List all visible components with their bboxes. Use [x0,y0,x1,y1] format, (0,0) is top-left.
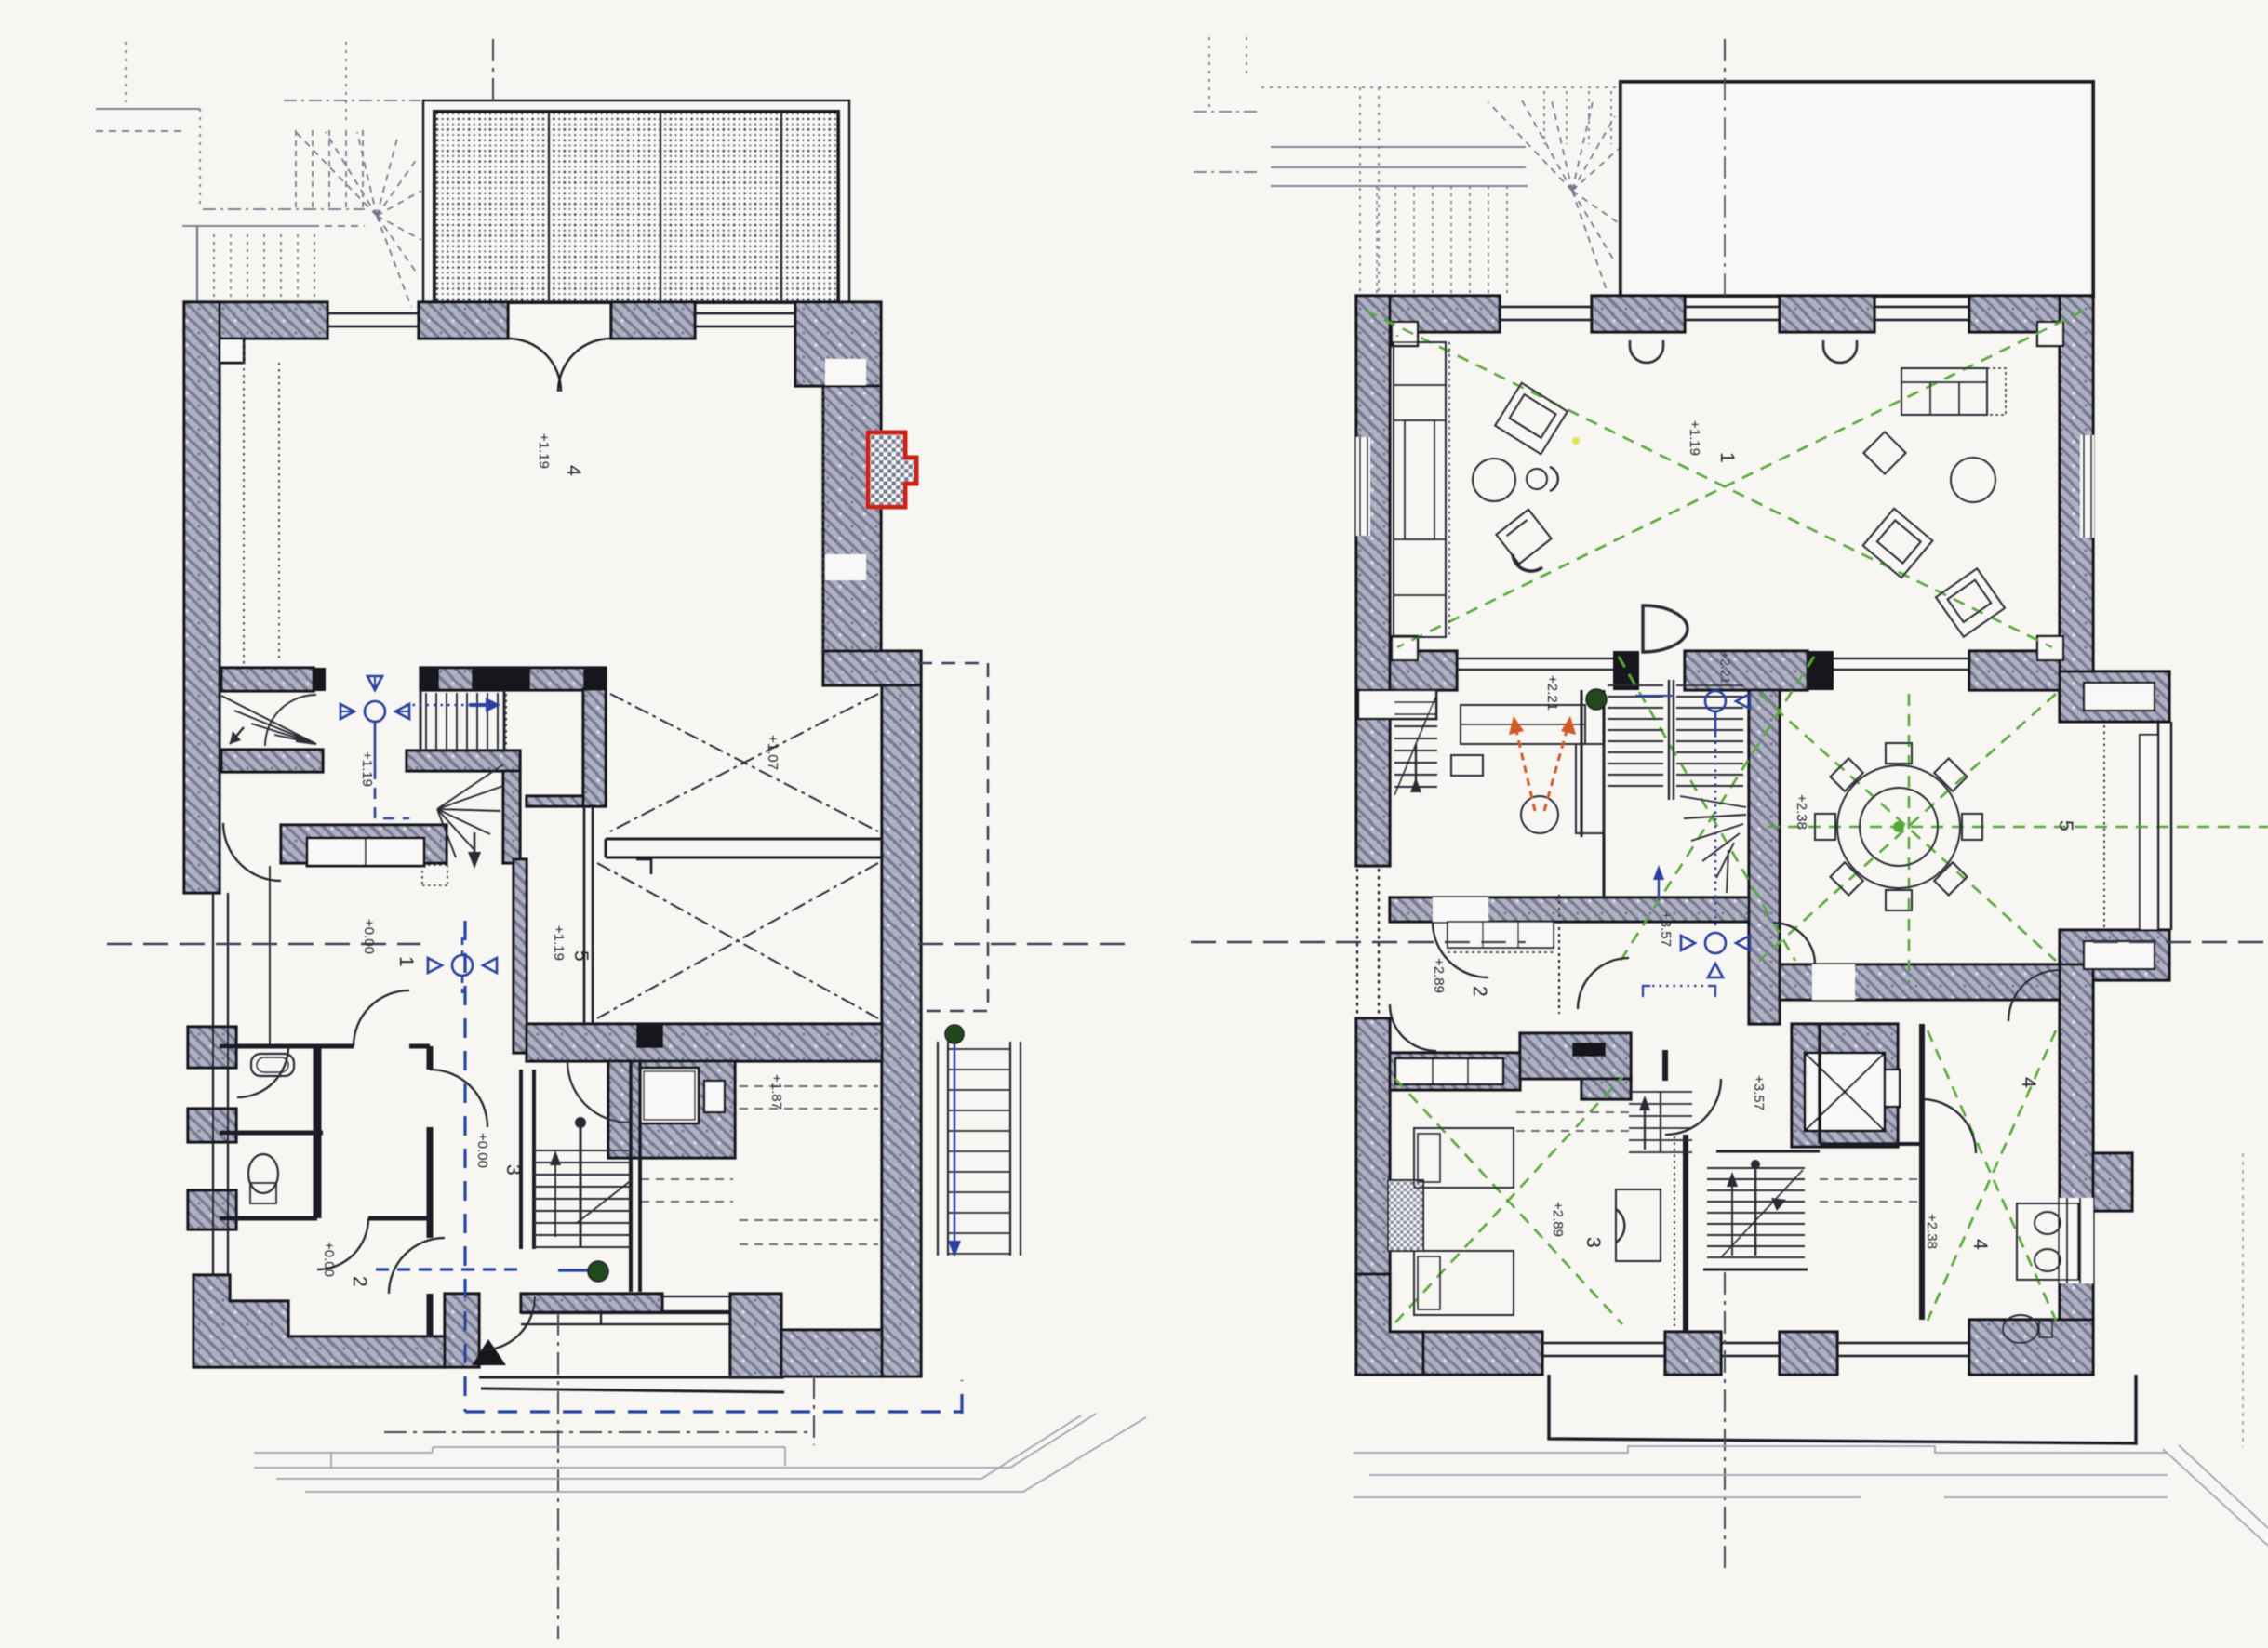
svg-text:+1.87: +1.87 [768,1074,784,1110]
svg-text:+2.21: +2.21 [1718,651,1733,684]
svg-text:1: 1 [395,956,417,967]
svg-text:+1.07: +1.07 [765,735,780,770]
svg-text:+1.19: +1.19 [359,751,375,787]
svg-text:5: 5 [570,950,592,962]
svg-text:+0.00: +0.00 [361,919,377,954]
svg-text:1: 1 [1716,452,1738,463]
svg-text:+2.89: +2.89 [1550,1202,1566,1237]
svg-text:+2.89: +2.89 [1431,958,1447,993]
svg-text:+3.57: +3.57 [1658,911,1674,947]
svg-text:+1.19: +1.19 [536,433,552,469]
svg-text:2: 2 [349,1276,370,1287]
svg-text:+0.00: +0.00 [474,1133,490,1168]
svg-text:+2.21: +2.21 [1544,675,1560,711]
svg-text:+3.57: +3.57 [1751,1075,1767,1110]
svg-text:4: 4 [2018,1077,2039,1088]
svg-text:+2.38: +2.38 [1924,1214,1940,1249]
svg-text:3: 3 [1582,1237,1604,1248]
svg-text:3: 3 [502,1164,524,1176]
svg-text:5: 5 [2055,820,2076,831]
svg-text:+2.38: +2.38 [1794,794,1809,830]
svg-text:+1.19: +1.19 [1687,420,1702,456]
svg-text:+1.19: +1.19 [551,925,567,961]
svg-text:4: 4 [563,465,584,476]
svg-text:+0.00: +0.00 [321,1242,337,1277]
svg-text:4: 4 [1969,1239,1991,1250]
svg-text:2: 2 [1469,986,1490,997]
